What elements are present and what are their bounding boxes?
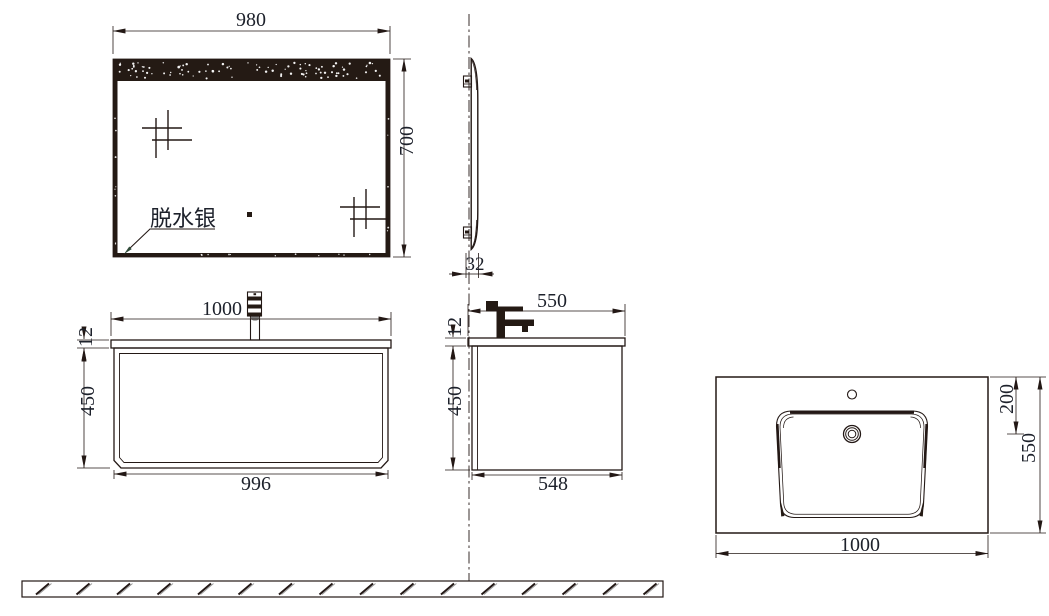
dim-text-counter-depth-side: 550 (537, 290, 567, 312)
dim-text-mirror-width: 980 (236, 9, 266, 31)
dim-counter-width-top: 1000 (716, 534, 988, 558)
dim-text-cabinet-depth-side: 548 (538, 473, 568, 495)
mirror-coating-label: 脱水银 (124, 206, 216, 254)
dim-mirror-thickness: 32 (449, 253, 494, 278)
sparkle-mark-1 (142, 110, 192, 158)
technical-drawing-page: 脱水银 980 700 (0, 0, 1049, 616)
dim-text-drain-offset: 200 (996, 384, 1018, 414)
dim-drain-offset: 200 (990, 377, 1046, 434)
mirror-mount-clip-bottom (464, 227, 472, 238)
dim-mirror-height: 700 (393, 59, 418, 257)
dim-cabinet-width-front: 996 (114, 470, 388, 495)
dim-counter-thickness-side: 12 (444, 317, 466, 359)
dim-text-cabinet-height-side: 450 (444, 386, 466, 416)
faucet-hole (848, 390, 857, 399)
dim-cabinet-height-front: 450 (77, 348, 110, 468)
basin-top-view: 200 550 1000 (716, 377, 1046, 558)
ground-line (22, 581, 663, 597)
faucet-side (486, 301, 534, 338)
dim-text-counter-depth-top: 550 (1018, 433, 1040, 463)
dim-text-counter-width-front: 1000 (202, 298, 242, 320)
coating-label-text: 脱水银 (150, 206, 216, 231)
dim-text-counter-thickness-side: 12 (444, 317, 466, 337)
dim-text-cabinet-width-front: 996 (241, 473, 271, 495)
dim-mirror-width: 980 (113, 9, 390, 54)
basin-outline (777, 411, 928, 518)
coating-leader-line (128, 229, 215, 250)
sparkle-mark-2 (340, 189, 390, 237)
countertop-side (468, 338, 625, 346)
mirror-mount-clip-top (464, 76, 472, 87)
countertop-front (111, 340, 391, 348)
mirror-center-dot (247, 212, 252, 217)
dim-cabinet-depth-side: 548 (472, 472, 622, 495)
dim-counter-depth-side: 550 (468, 290, 625, 336)
faucet-front (248, 292, 262, 340)
drain (844, 426, 861, 443)
cabinet-side (472, 346, 622, 470)
vanity-side-view: 550 12 450 548 (444, 290, 625, 495)
vanity-front-view: 1000 12 450 996 (75, 292, 391, 495)
technical-drawing-canvas: 脱水银 980 700 (0, 0, 1049, 616)
dim-counter-thickness-front: 12 (75, 327, 109, 361)
mirror-front-view: 脱水银 980 700 (113, 9, 418, 257)
dim-cabinet-height-side: 450 (444, 346, 470, 470)
cabinet-front-inner-panel (120, 354, 383, 463)
dim-text-counter-thickness-front: 12 (75, 327, 97, 347)
dim-text-cabinet-height-front: 450 (77, 386, 99, 416)
dim-text-mirror-thickness: 32 (466, 254, 485, 275)
counter-outline-top (716, 377, 988, 533)
dim-text-counter-width-top: 1000 (840, 534, 880, 556)
cabinet-front (114, 348, 388, 468)
mirror-side-view: 32 (449, 59, 494, 279)
dim-text-mirror-height: 700 (396, 126, 418, 156)
ground-hatch (36, 584, 659, 595)
